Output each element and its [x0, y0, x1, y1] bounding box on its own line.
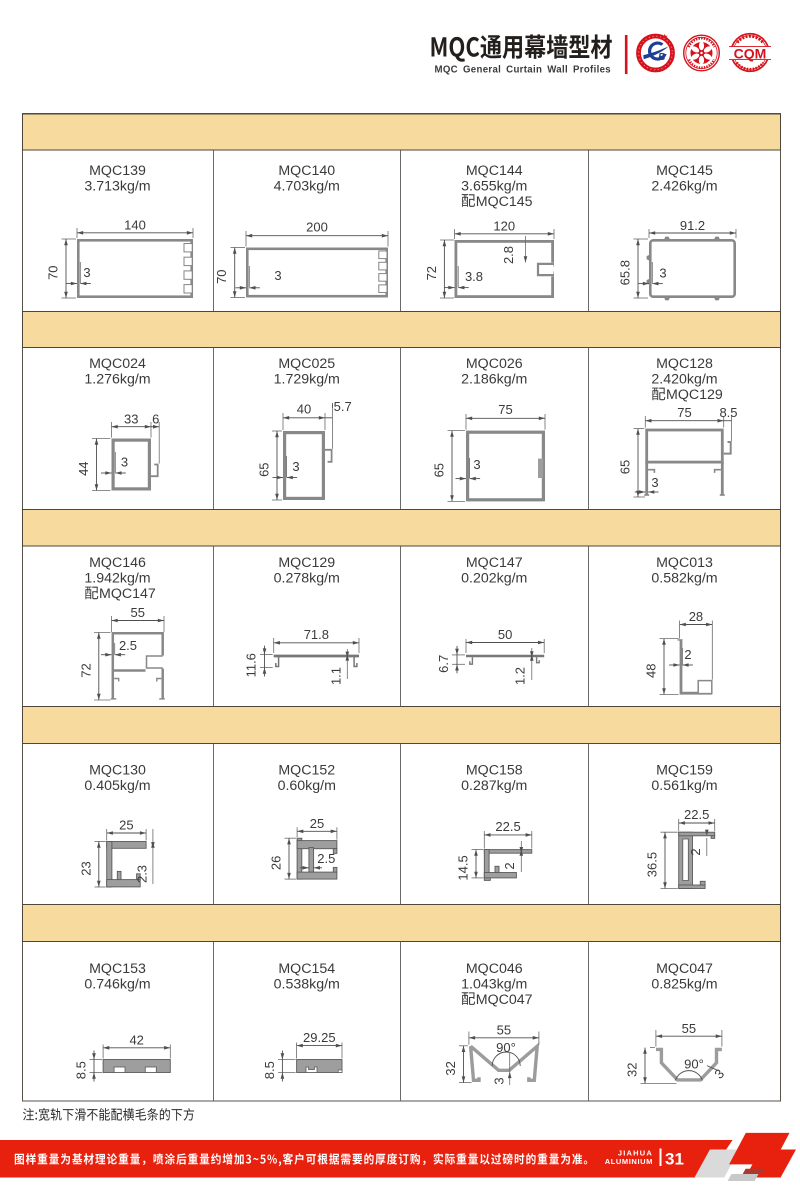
svg-text:0.405kg/m: 0.405kg/m — [84, 778, 150, 794]
svg-text:1.2: 1.2 — [513, 667, 528, 685]
svg-text:MQC013: MQC013 — [656, 555, 713, 571]
svg-text:CQM: CQM — [734, 46, 767, 62]
svg-text:55: 55 — [682, 1021, 696, 1036]
svg-text:2.3: 2.3 — [134, 865, 149, 883]
svg-text:90°: 90° — [684, 1057, 704, 1072]
svg-text:3: 3 — [83, 265, 90, 280]
svg-text:MQC159: MQC159 — [656, 763, 713, 779]
svg-text:MQC129: MQC129 — [666, 387, 723, 403]
svg-text:72: 72 — [78, 663, 93, 677]
svg-text:2: 2 — [684, 647, 691, 662]
svg-text:26: 26 — [269, 856, 284, 870]
svg-text:65: 65 — [618, 460, 633, 474]
svg-text:70: 70 — [214, 269, 229, 283]
svg-text:MQC General Curtain Wall Profi: MQC General Curtain Wall Profiles — [435, 64, 612, 75]
svg-text:MQC128: MQC128 — [656, 356, 713, 372]
svg-text:8.5: 8.5 — [262, 1061, 277, 1079]
svg-text:40: 40 — [297, 402, 311, 417]
svg-text:14.5: 14.5 — [456, 855, 471, 880]
svg-text:MQC154: MQC154 — [278, 961, 335, 977]
svg-text:65.8: 65.8 — [618, 260, 633, 285]
svg-text:3: 3 — [121, 455, 128, 470]
svg-text:MQC130: MQC130 — [89, 763, 146, 779]
svg-text:3: 3 — [651, 475, 658, 490]
svg-text:3: 3 — [473, 457, 480, 472]
svg-text:120: 120 — [493, 218, 515, 233]
svg-text:5.7: 5.7 — [334, 399, 352, 414]
svg-text:3.8: 3.8 — [465, 269, 483, 284]
svg-text:42: 42 — [129, 1032, 143, 1047]
svg-text:25: 25 — [310, 816, 324, 831]
svg-text:22.5: 22.5 — [495, 819, 520, 834]
svg-text:6: 6 — [152, 411, 159, 426]
svg-text:2.8: 2.8 — [501, 246, 516, 264]
svg-text:23: 23 — [78, 861, 93, 875]
svg-text:65: 65 — [257, 462, 272, 476]
svg-text:22.5: 22.5 — [684, 807, 709, 822]
svg-text:MQC147: MQC147 — [99, 586, 156, 602]
svg-text:55: 55 — [131, 605, 145, 620]
svg-text:25: 25 — [119, 818, 133, 833]
svg-text:72: 72 — [424, 266, 439, 280]
svg-text:3: 3 — [274, 268, 281, 283]
svg-text:3: 3 — [659, 266, 666, 281]
svg-text:33: 33 — [124, 411, 138, 426]
svg-text:1.276kg/m: 1.276kg/m — [84, 372, 150, 388]
svg-text:2: 2 — [688, 848, 703, 855]
svg-text:MQC152: MQC152 — [278, 763, 335, 779]
svg-text:0.561kg/m: 0.561kg/m — [651, 778, 717, 794]
svg-text:3.655kg/m: 3.655kg/m — [461, 178, 527, 194]
svg-text:2: 2 — [502, 862, 517, 869]
svg-text:0.287kg/m: 0.287kg/m — [461, 778, 527, 794]
svg-text:29.25: 29.25 — [303, 1030, 336, 1045]
svg-text:0.278kg/m: 0.278kg/m — [274, 571, 340, 587]
svg-text:1.729kg/m: 1.729kg/m — [274, 372, 340, 388]
svg-text:71.8: 71.8 — [304, 627, 329, 642]
svg-text:200: 200 — [306, 220, 328, 235]
svg-text:0.582kg/m: 0.582kg/m — [651, 571, 717, 587]
svg-text:140: 140 — [124, 218, 146, 233]
svg-text:3.713kg/m: 3.713kg/m — [84, 178, 150, 194]
svg-text:MQC047: MQC047 — [656, 961, 713, 977]
svg-text:50: 50 — [498, 627, 512, 642]
svg-text:32: 32 — [625, 1063, 640, 1077]
svg-text:MQC046: MQC046 — [466, 961, 523, 977]
svg-text:MQC047: MQC047 — [476, 992, 533, 1008]
svg-text:75: 75 — [498, 402, 512, 417]
svg-text:8.5: 8.5 — [719, 405, 737, 420]
svg-text:6.7: 6.7 — [436, 655, 451, 673]
svg-text:32: 32 — [443, 1061, 458, 1075]
svg-text:3: 3 — [292, 459, 299, 474]
svg-text:MQC139: MQC139 — [89, 163, 146, 179]
svg-text:MQC129: MQC129 — [278, 555, 335, 571]
svg-text:B: B — [658, 52, 665, 63]
svg-text:2.5: 2.5 — [317, 851, 335, 866]
svg-text:70: 70 — [46, 265, 61, 279]
svg-text:31: 31 — [665, 1150, 684, 1169]
svg-text:MQC145: MQC145 — [656, 163, 713, 179]
svg-text:2.426kg/m: 2.426kg/m — [651, 178, 717, 194]
svg-text:MQC158: MQC158 — [466, 763, 523, 779]
svg-text:3: 3 — [711, 1066, 727, 1082]
svg-text:90°: 90° — [496, 1040, 516, 1055]
svg-text:0.538kg/m: 0.538kg/m — [274, 976, 340, 992]
svg-text:2.186kg/m: 2.186kg/m — [461, 372, 527, 388]
svg-text:MQC146: MQC146 — [89, 555, 146, 571]
svg-text:MQC140: MQC140 — [278, 163, 335, 179]
svg-text:65: 65 — [432, 463, 447, 477]
svg-text:2.5: 2.5 — [119, 638, 137, 653]
svg-text:2.420kg/m: 2.420kg/m — [651, 372, 717, 388]
svg-text:36.5: 36.5 — [645, 852, 660, 877]
svg-text:1.942kg/m: 1.942kg/m — [84, 571, 150, 587]
svg-text:MQC144: MQC144 — [466, 163, 523, 179]
svg-text:44: 44 — [76, 461, 91, 475]
svg-text:55: 55 — [497, 1022, 511, 1037]
svg-text:75: 75 — [677, 405, 691, 420]
svg-text:1.043kg/m: 1.043kg/m — [461, 976, 527, 992]
svg-text:MQC024: MQC024 — [89, 356, 146, 372]
svg-text:MQC145: MQC145 — [476, 194, 533, 210]
svg-text:0.202kg/m: 0.202kg/m — [461, 571, 527, 587]
svg-text:4.703kg/m: 4.703kg/m — [274, 178, 340, 194]
svg-text:0.60kg/m: 0.60kg/m — [278, 778, 336, 794]
svg-text:11.6: 11.6 — [244, 653, 259, 677]
svg-text:1.1: 1.1 — [329, 667, 344, 685]
svg-text:91.2: 91.2 — [680, 218, 705, 233]
svg-text:48: 48 — [644, 664, 659, 678]
svg-text:0.825kg/m: 0.825kg/m — [651, 976, 717, 992]
svg-text:28: 28 — [689, 609, 703, 624]
svg-text:MQC026: MQC026 — [466, 356, 523, 372]
svg-text:0.746kg/m: 0.746kg/m — [84, 976, 150, 992]
svg-text:3: 3 — [491, 1077, 506, 1084]
svg-text:MQC147: MQC147 — [466, 555, 523, 571]
svg-text:MQC025: MQC025 — [278, 356, 335, 372]
svg-text:ALUMINIUM: ALUMINIUM — [605, 1157, 653, 1166]
svg-text:8.5: 8.5 — [74, 1061, 89, 1079]
svg-text:MQC153: MQC153 — [89, 961, 146, 977]
